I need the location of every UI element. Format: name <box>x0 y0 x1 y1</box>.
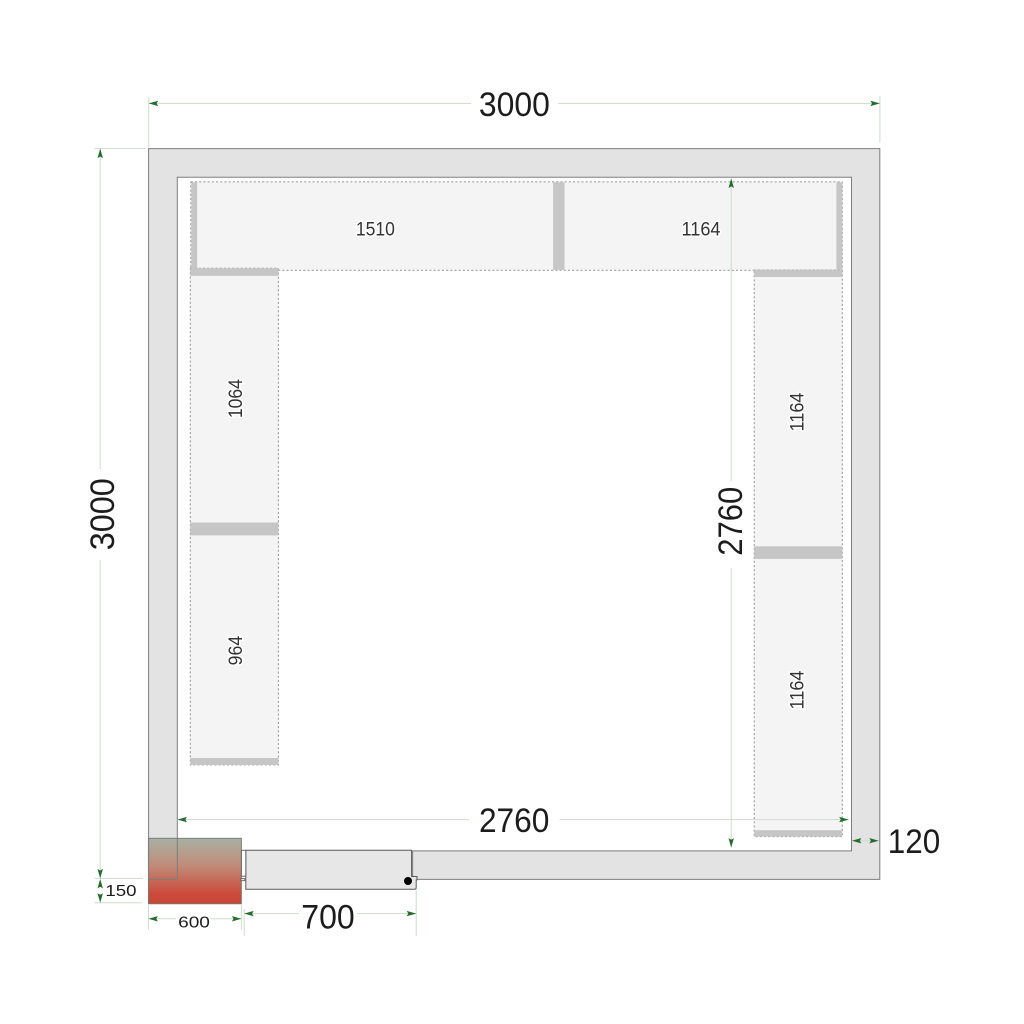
svg-text:1164: 1164 <box>788 670 809 709</box>
svg-text:700: 700 <box>301 898 355 936</box>
svg-text:1164: 1164 <box>788 392 809 431</box>
svg-text:1510: 1510 <box>356 219 395 240</box>
svg-text:2760: 2760 <box>712 487 750 556</box>
svg-text:150: 150 <box>105 883 136 900</box>
svg-text:1164: 1164 <box>682 219 721 240</box>
svg-text:120: 120 <box>888 823 941 861</box>
svg-text:2760: 2760 <box>479 802 550 840</box>
svg-text:1064: 1064 <box>226 379 247 418</box>
svg-text:964: 964 <box>226 635 247 665</box>
svg-text:3000: 3000 <box>479 86 550 124</box>
svg-text:600: 600 <box>178 914 210 931</box>
svg-text:3000: 3000 <box>84 478 122 550</box>
